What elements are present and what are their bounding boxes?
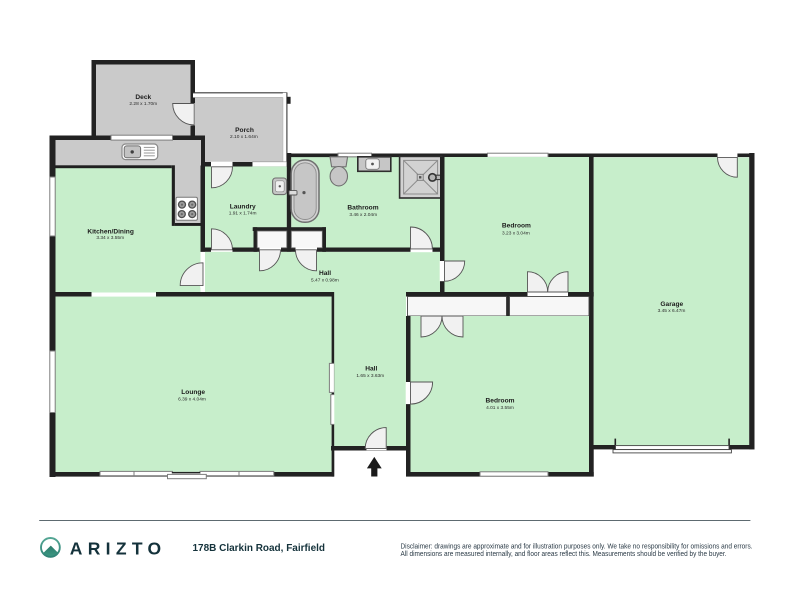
svg-text:1.65 x 3.63m: 1.65 x 3.63m xyxy=(356,373,384,379)
svg-text:ARIZTO: ARIZTO xyxy=(70,539,167,559)
svg-text:2.10 x 1.64m: 2.10 x 1.64m xyxy=(230,134,258,140)
svg-text:1.91 x 1.74m: 1.91 x 1.74m xyxy=(229,211,257,217)
svg-text:Kitchen/Dining: Kitchen/Dining xyxy=(87,228,134,235)
svg-text:Laundry: Laundry xyxy=(230,203,256,210)
svg-text:3.45 x 6.47m: 3.45 x 6.47m xyxy=(658,308,686,314)
svg-text:Lounge: Lounge xyxy=(181,389,205,396)
svg-text:3.46 x 2.04m: 3.46 x 2.04m xyxy=(349,212,377,218)
svg-text:Porch: Porch xyxy=(235,127,254,134)
svg-text:3.23 x 3.04m: 3.23 x 3.04m xyxy=(502,230,530,236)
svg-text:All dimensions are measured in: All dimensions are measured internally, … xyxy=(401,549,727,558)
svg-text:Hall: Hall xyxy=(319,270,331,277)
svg-text:Bedroom: Bedroom xyxy=(486,398,515,405)
svg-text:3.34 x 3.55m: 3.34 x 3.55m xyxy=(96,235,124,241)
svg-text:Bathroom: Bathroom xyxy=(347,205,378,212)
svg-text:Bedroom: Bedroom xyxy=(502,223,531,230)
svg-text:6.39 x 4.04m: 6.39 x 4.04m xyxy=(178,397,206,403)
svg-text:Hall: Hall xyxy=(365,365,377,372)
svg-text:178B Clarkin Road, Fairfield: 178B Clarkin Road, Fairfield xyxy=(193,543,326,554)
svg-text:Deck: Deck xyxy=(135,94,151,101)
svg-text:Garage: Garage xyxy=(660,301,683,308)
svg-text:2.28 x 1.70m: 2.28 x 1.70m xyxy=(129,101,157,107)
svg-text:4.01 x 3.55m: 4.01 x 3.55m xyxy=(486,405,514,411)
svg-text:5.47 x 0.98m: 5.47 x 0.98m xyxy=(311,277,339,283)
